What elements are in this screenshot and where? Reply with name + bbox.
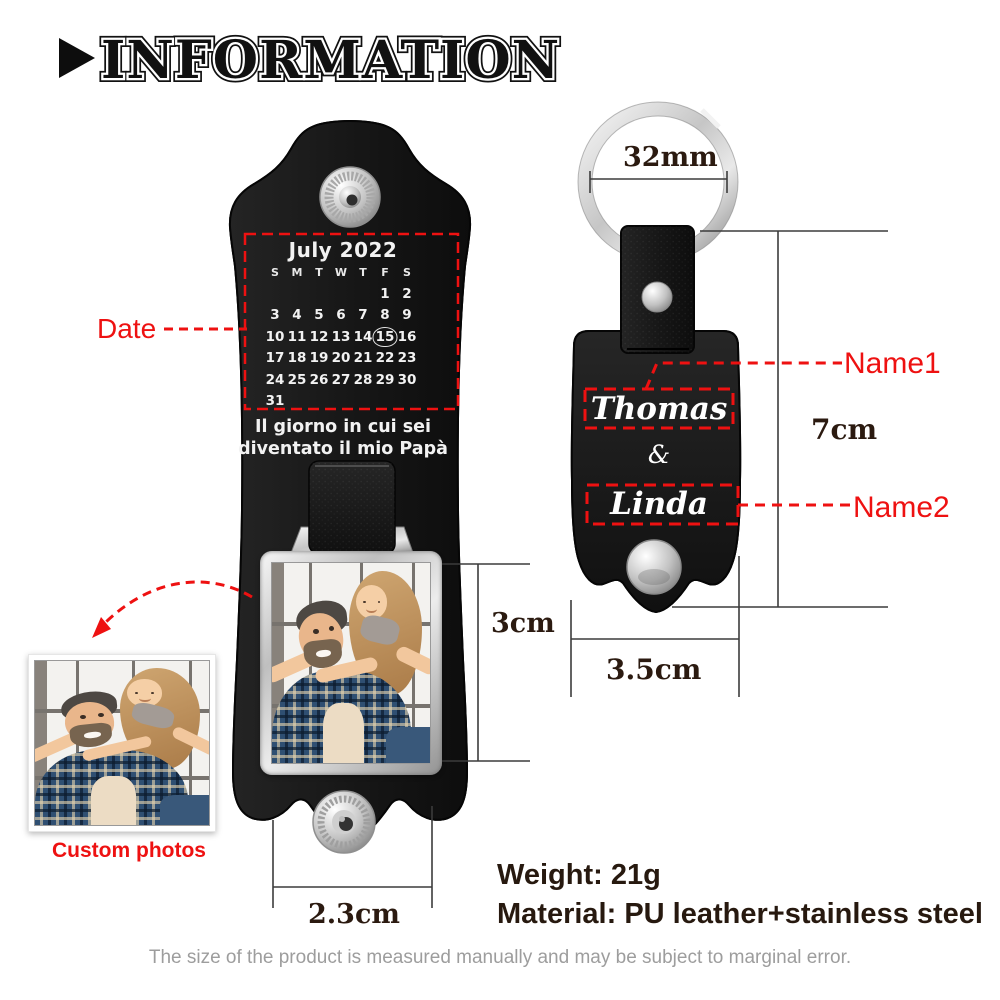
bottom-rivet: [313, 791, 375, 853]
calendar-day: 6: [330, 305, 352, 327]
date-label: Date: [97, 313, 156, 345]
calendar-day-empty: [330, 283, 352, 305]
calendar-day: 31: [264, 391, 286, 413]
calendar-day: 26: [308, 369, 330, 391]
strap-rivet: [642, 282, 672, 312]
weight-spec: Weight: 21g: [497, 856, 983, 895]
photo-man-eye: [313, 629, 319, 634]
calendar-day-header: S: [396, 262, 418, 283]
fob-height-label: 7cm: [811, 413, 877, 446]
calendar-day-header: W: [330, 262, 352, 283]
product-specs: Weight: 21g Material: PU leather+stainle…: [497, 856, 983, 934]
calendar-day-empty: [374, 391, 396, 413]
calendar-day: 23: [396, 348, 418, 370]
custom-photo-arrow: [99, 582, 252, 629]
photo-height-label: 3cm: [491, 608, 555, 639]
photo-girl-eye: [135, 692, 138, 694]
name2-label: Name2: [853, 491, 950, 525]
custom-photos-label: Custom photos: [52, 839, 206, 863]
title-banner: INFORMATION INFORMATION INFORMATION: [55, 22, 575, 94]
calendar-day: 14: [352, 326, 374, 348]
custom-photo-preview: [34, 660, 210, 826]
name1-label: Name1: [844, 347, 941, 381]
fob-width-label: 3.5cm: [606, 653, 701, 686]
top-snap-button: [320, 167, 380, 227]
calendar-day-empty: [352, 391, 374, 413]
photo-blue-corner: [160, 795, 210, 826]
fob-snap-button: [627, 540, 681, 594]
strap-width-label: 2.3cm: [308, 899, 400, 930]
engraved-name1: Thomas: [577, 391, 741, 427]
right-triangle-icon: [59, 38, 95, 78]
photo-girl-eye: [378, 601, 381, 604]
material-spec: Material: PU leather+stainless steel: [497, 895, 983, 934]
calendar-day: 3: [264, 305, 286, 327]
calendar-grid: SMTWTFS123456789101112131415161718192021…: [264, 262, 418, 412]
calendar-day: 27: [330, 369, 352, 391]
calendar-day: 1: [374, 283, 396, 305]
calendar-day-empty: [396, 391, 418, 413]
calendar-day: 4: [286, 305, 308, 327]
calendar-day-header: T: [308, 262, 330, 283]
photo-girl-smile: [139, 695, 151, 702]
calendar-day-header: M: [286, 262, 308, 283]
keychain-caption-line2: diventato il mio Papà: [238, 439, 448, 459]
keychain-photo: [271, 562, 431, 764]
disclaimer-text: The size of the product is measured manu…: [0, 947, 1000, 969]
calendar-day: 29: [374, 369, 396, 391]
calendar-day-empty: [352, 283, 374, 305]
calendar-day: 18: [286, 348, 308, 370]
photo-girl-eye: [151, 692, 154, 694]
calendar-day: 2: [396, 283, 418, 305]
calendar-day-empty: [286, 391, 308, 413]
calendar-month-title: July 2022: [260, 238, 426, 262]
product-information-page: INFORMATION INFORMATION INFORMATION July…: [0, 0, 1000, 1000]
ring-diameter-label: 32mm: [623, 142, 718, 173]
calendar-day-empty: [308, 391, 330, 413]
photo-girl-smile: [366, 605, 377, 613]
custom-photo-card: [28, 654, 216, 832]
calendar-day: 7: [352, 305, 374, 327]
photo-girl-eye: [363, 601, 366, 604]
calendar-day: 25: [286, 369, 308, 391]
calendar-day-header: S: [264, 262, 286, 283]
photo-blue-corner: [386, 727, 431, 764]
calendar-day: 16: [396, 326, 418, 348]
calendar-day-empty: [308, 283, 330, 305]
calendar-day: 19: [308, 348, 330, 370]
calendar-day-empty: [286, 283, 308, 305]
calendar-day-empty: [264, 283, 286, 305]
engraved-name2: Linda: [577, 486, 741, 522]
photo-man-tshirt: [91, 776, 136, 825]
photo-frame-pendant: [260, 551, 442, 775]
calendar-day-header: T: [352, 262, 374, 283]
calendar-day: 10: [264, 326, 286, 348]
photo-girl-face: [356, 585, 388, 619]
calendar-day: 20: [330, 348, 352, 370]
calendar-day-header: F: [374, 262, 396, 283]
calendar-day: 5: [308, 305, 330, 327]
calendar-day: 11: [286, 326, 308, 348]
calendar-day: 9: [396, 305, 418, 327]
engraved-ampersand: &: [577, 440, 741, 469]
calendar-day: 21: [352, 348, 374, 370]
calendar-day: 13: [330, 326, 352, 348]
photo-man-eye: [98, 713, 104, 717]
calendar-day: 12: [308, 326, 330, 348]
calendar-day: 22: [374, 348, 396, 370]
calendar-day: 15: [374, 326, 396, 348]
page-title: INFORMATION: [101, 30, 560, 91]
calendar-day: 30: [396, 369, 418, 391]
keychain-caption-line1: Il giorno in cui sei: [238, 417, 448, 437]
calendar-day: 24: [264, 369, 286, 391]
photo-man-tshirt: [323, 703, 364, 763]
calendar-day: 8: [374, 305, 396, 327]
calendar-day-empty: [330, 391, 352, 413]
calendar-day: 28: [352, 369, 374, 391]
calendar-day: 17: [264, 348, 286, 370]
